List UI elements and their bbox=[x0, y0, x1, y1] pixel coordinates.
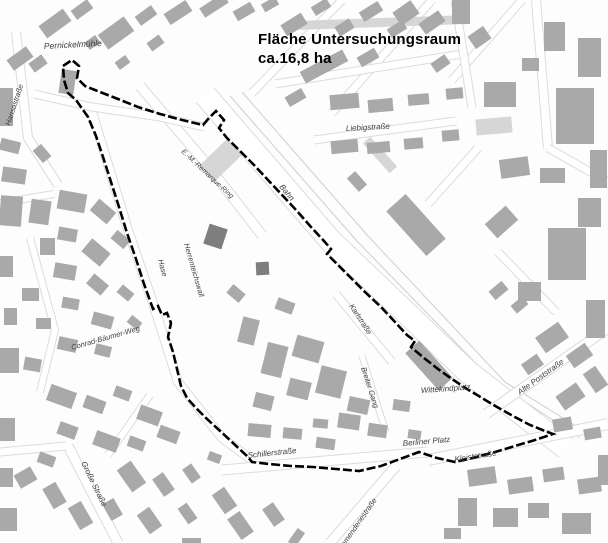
building-footprint bbox=[442, 129, 460, 141]
building-footprint bbox=[22, 288, 39, 301]
building-footprint bbox=[458, 498, 477, 526]
building-footprint bbox=[392, 399, 410, 412]
building-footprint bbox=[283, 427, 303, 440]
building-footprint bbox=[562, 513, 591, 534]
building-footprint bbox=[256, 262, 270, 276]
building-footprint bbox=[484, 82, 516, 107]
building-footprint bbox=[598, 455, 608, 485]
building-footprint bbox=[452, 0, 470, 24]
building-footprint bbox=[528, 503, 549, 518]
building-footprint bbox=[590, 150, 607, 188]
building-footprint bbox=[367, 423, 388, 439]
building-footprint bbox=[493, 508, 518, 527]
building-footprint bbox=[0, 508, 17, 531]
building-footprint bbox=[475, 116, 512, 135]
building-footprint bbox=[0, 468, 13, 487]
building-footprint bbox=[544, 22, 565, 51]
map-title-line2: ca.16,8 ha bbox=[258, 49, 461, 68]
building-footprint bbox=[28, 199, 51, 226]
building-footprint bbox=[0, 256, 13, 277]
building-footprint bbox=[313, 418, 329, 428]
map-canvas: PernickelmühleHansastraßeE.-M.-Remarque-… bbox=[0, 0, 608, 543]
map-title: Fläche Untersuchungsraum ca.16,8 ha bbox=[258, 30, 461, 68]
building-footprint bbox=[548, 228, 586, 280]
building-footprint bbox=[329, 93, 359, 110]
building-footprint bbox=[586, 300, 605, 338]
building-footprint bbox=[40, 238, 55, 255]
map-title-line1: Fläche Untersuchungsraum bbox=[258, 30, 461, 49]
building-footprint bbox=[540, 168, 565, 183]
building-footprint bbox=[578, 38, 601, 77]
building-footprint bbox=[578, 198, 601, 227]
building-footprint bbox=[330, 139, 358, 154]
building-footprint bbox=[367, 98, 393, 113]
building-footprint bbox=[182, 538, 201, 543]
building-footprint bbox=[446, 87, 464, 99]
building-footprint bbox=[499, 156, 530, 179]
building-footprint bbox=[408, 93, 430, 106]
building-footprint bbox=[0, 418, 15, 441]
building-footprint bbox=[337, 413, 361, 431]
building-footprint bbox=[556, 88, 594, 144]
building-footprint bbox=[404, 137, 424, 150]
building-footprint bbox=[367, 141, 391, 154]
building-footprint bbox=[0, 195, 23, 226]
building-footprint bbox=[444, 528, 461, 539]
map-screenshot: PernickelmühleHansastraßeE.-M.-Remarque-… bbox=[0, 0, 608, 543]
building-footprint bbox=[247, 423, 271, 438]
building-footprint bbox=[36, 318, 51, 329]
building-footprint bbox=[522, 58, 539, 71]
building-footprint bbox=[0, 348, 19, 373]
building-footprint bbox=[4, 308, 17, 325]
